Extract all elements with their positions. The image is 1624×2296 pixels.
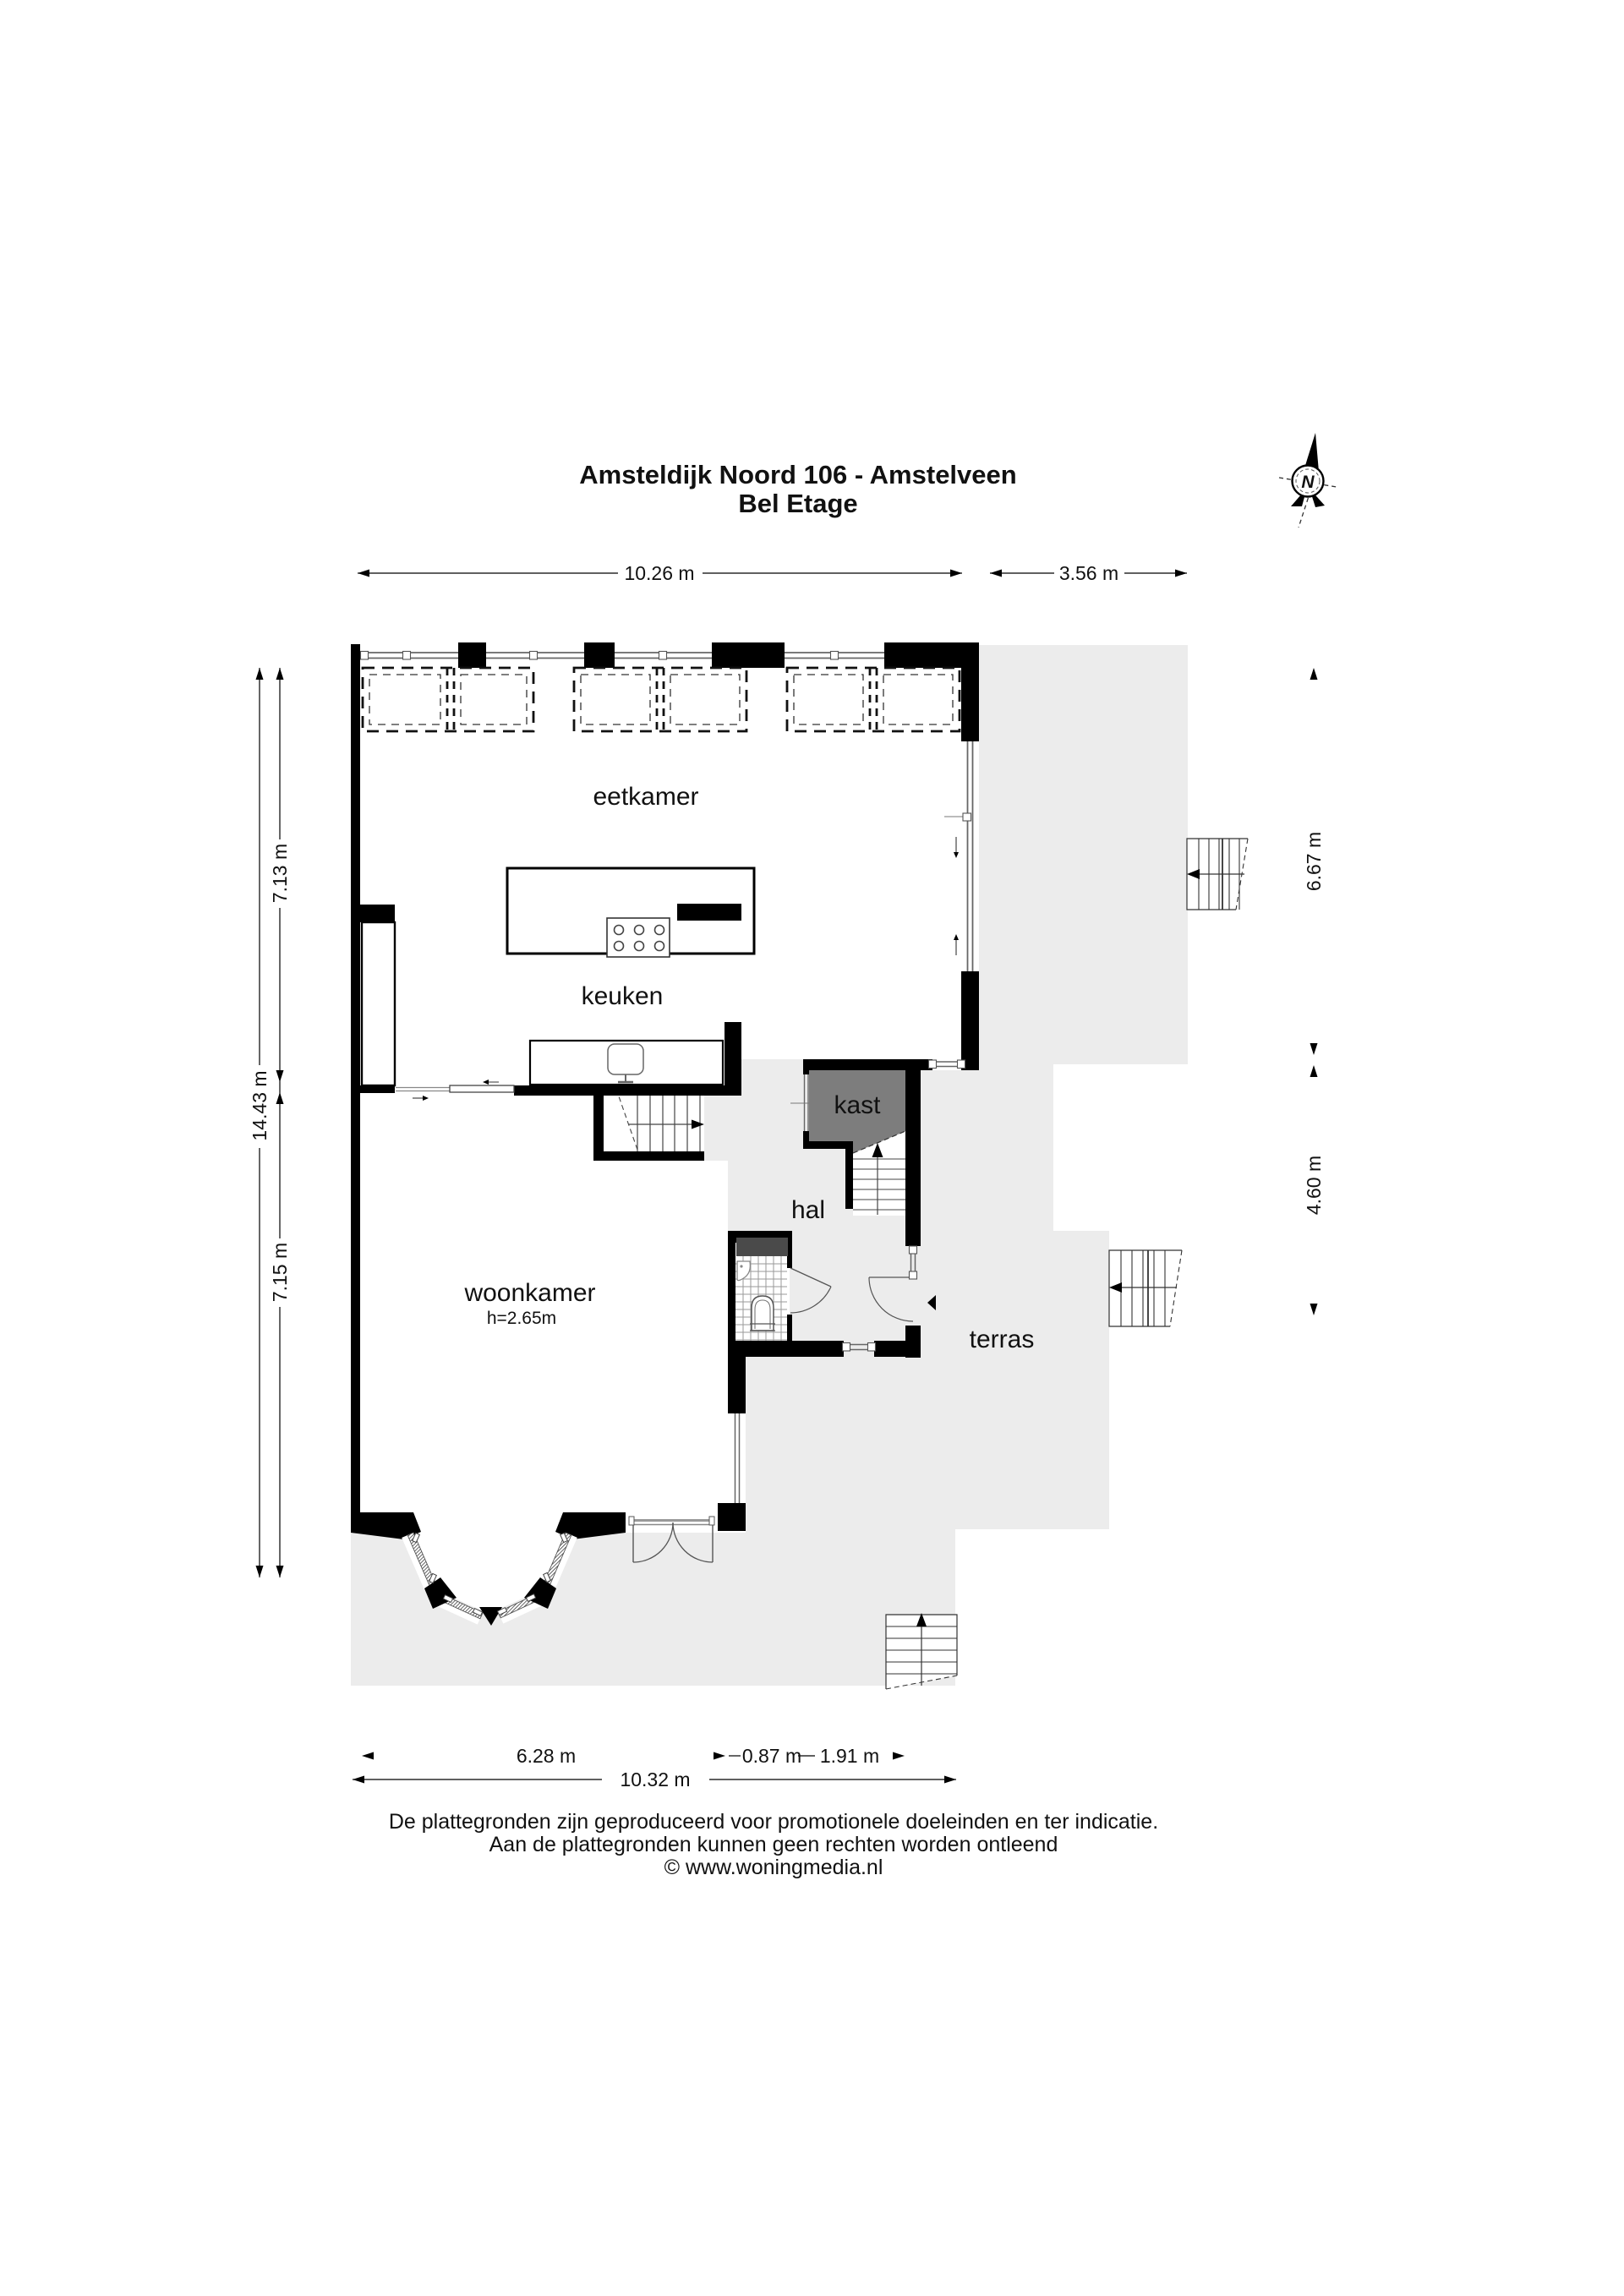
svg-text:6.28 m: 6.28 m: [517, 1745, 576, 1767]
svg-text:eetkamer: eetkamer: [593, 783, 698, 811]
svg-text:4.60 m: 4.60 m: [1303, 1156, 1325, 1215]
svg-text:10.26 m: 10.26 m: [624, 562, 694, 584]
svg-text:Amsteldijk Noord 106 - Amstelv: Amsteldijk Noord 106 - Amstelveen: [579, 460, 1016, 489]
svg-text:Aan de plattegronden kunnen ge: Aan de plattegronden kunnen geen rechten…: [489, 1833, 1058, 1856]
svg-text:7.15 m: 7.15 m: [269, 1243, 291, 1302]
svg-text:terras: terras: [970, 1326, 1035, 1353]
svg-text:6.67 m: 6.67 m: [1303, 832, 1325, 891]
svg-text:14.43 m: 14.43 m: [249, 1070, 271, 1140]
svg-text:hal: hal: [791, 1196, 825, 1224]
svg-text:keuken: keuken: [582, 982, 664, 1010]
svg-text:kast: kast: [834, 1091, 881, 1119]
svg-text:woonkamer: woonkamer: [463, 1279, 595, 1307]
svg-text:10.32 m: 10.32 m: [620, 1768, 690, 1790]
svg-text:Bel Etage: Bel Etage: [738, 489, 857, 518]
svg-text:N: N: [1301, 473, 1315, 492]
svg-text:De plattegronden zijn geproduc: De plattegronden zijn geproduceerd voor …: [389, 1810, 1158, 1834]
svg-text:3.56 m: 3.56 m: [1059, 562, 1118, 584]
svg-text:1.91 m: 1.91 m: [820, 1745, 879, 1767]
svg-text:© www.woningmedia.nl: © www.woningmedia.nl: [664, 1856, 883, 1879]
svg-text:7.13 m: 7.13 m: [269, 844, 291, 903]
svg-text:0.87 m: 0.87 m: [742, 1745, 801, 1767]
svg-text:h=2.65m: h=2.65m: [487, 1309, 556, 1328]
